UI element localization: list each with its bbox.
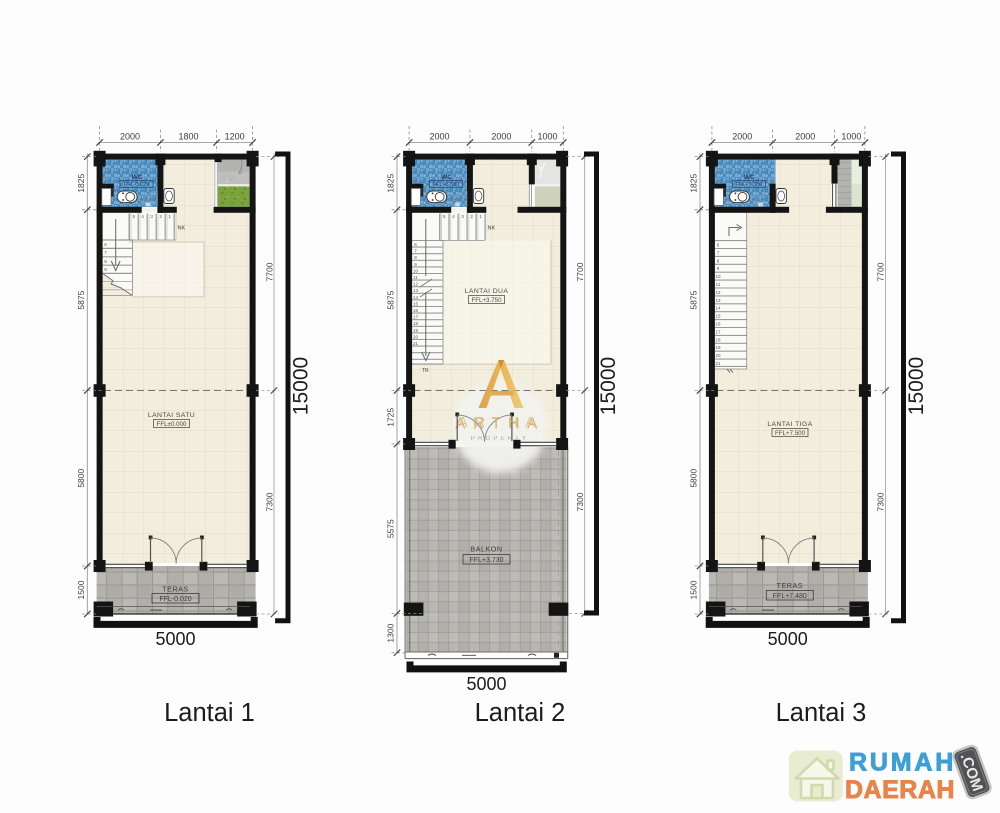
- svg-text:17: 17: [413, 315, 419, 320]
- svg-text:1725: 1725: [386, 408, 396, 427]
- svg-text:13: 13: [413, 288, 419, 293]
- svg-text:13: 13: [715, 298, 721, 303]
- svg-text:FFL-0.020: FFL-0.020: [124, 182, 149, 188]
- svg-text:14: 14: [413, 295, 419, 300]
- svg-text:2000: 2000: [732, 132, 752, 142]
- svg-text:NK: NK: [488, 226, 496, 232]
- svg-text:1825: 1825: [386, 173, 396, 192]
- svg-text:TERAS: TERAS: [162, 585, 188, 594]
- svg-text:18: 18: [413, 321, 419, 326]
- svg-text:FFL+3.680: FFL+3.680: [433, 182, 460, 188]
- svg-text:12: 12: [413, 282, 419, 287]
- svg-text:WC: WC: [744, 174, 755, 181]
- svg-text:7700: 7700: [265, 262, 275, 281]
- svg-text:1000: 1000: [841, 132, 861, 142]
- svg-text:18: 18: [715, 337, 721, 342]
- svg-text:FFL±0.000: FFL±0.000: [157, 421, 187, 428]
- svg-text:5575: 5575: [386, 519, 396, 538]
- svg-text:WC: WC: [132, 174, 143, 181]
- svg-text:1825: 1825: [76, 173, 86, 192]
- svg-text:LANTAI SATU: LANTAI SATU: [148, 412, 195, 419]
- svg-text:TERAS: TERAS: [777, 581, 803, 590]
- svg-text:19: 19: [715, 345, 721, 350]
- svg-text:7300: 7300: [575, 492, 585, 511]
- svg-text:20: 20: [413, 334, 419, 339]
- svg-text:DAERAH: DAERAH: [845, 776, 955, 804]
- svg-text:5000: 5000: [768, 629, 808, 649]
- svg-text:5000: 5000: [466, 674, 506, 694]
- svg-text:2000: 2000: [120, 132, 140, 142]
- svg-text:FFL+3.750: FFL+3.750: [471, 297, 502, 304]
- svg-text:16: 16: [413, 308, 419, 313]
- svg-text:1000: 1000: [537, 132, 557, 142]
- svg-text:FFL+7.380: FFL+7.380: [735, 182, 762, 188]
- svg-text:FFL+7.480: FFL+7.480: [773, 593, 807, 600]
- svg-text:5800: 5800: [76, 468, 86, 487]
- svg-text:5875: 5875: [386, 290, 396, 309]
- svg-text:12: 12: [715, 290, 721, 295]
- svg-text:BALKON: BALKON: [470, 545, 502, 554]
- svg-text:LANTAI TIGA: LANTAI TIGA: [767, 421, 812, 428]
- svg-text:Lantai 2: Lantai 2: [475, 699, 566, 727]
- svg-text:15000: 15000: [597, 357, 620, 415]
- svg-text:5000: 5000: [155, 629, 195, 649]
- svg-text:1800: 1800: [178, 132, 198, 142]
- svg-text:1500: 1500: [689, 580, 699, 599]
- svg-text:7300: 7300: [265, 492, 275, 511]
- svg-text:15: 15: [715, 314, 721, 319]
- svg-text:1300: 1300: [386, 623, 396, 642]
- svg-text:RUMAH: RUMAH: [849, 749, 956, 777]
- svg-text:ARTHA: ARTHA: [458, 415, 542, 431]
- svg-text:Lantai 1: Lantai 1: [164, 699, 255, 727]
- svg-text:FFL+7.500: FFL+7.500: [775, 430, 806, 437]
- svg-text:17: 17: [715, 329, 721, 334]
- svg-text:1825: 1825: [689, 173, 699, 192]
- svg-text:2000: 2000: [795, 132, 815, 142]
- svg-text:5875: 5875: [689, 290, 699, 309]
- svg-text:15000: 15000: [290, 357, 313, 415]
- svg-text:2000: 2000: [429, 132, 449, 142]
- svg-text:1500: 1500: [76, 580, 86, 599]
- svg-text:WC: WC: [441, 174, 452, 181]
- svg-text:NK: NK: [178, 226, 186, 232]
- svg-text:2000: 2000: [491, 132, 511, 142]
- svg-text:10: 10: [413, 268, 419, 273]
- svg-text:10: 10: [715, 274, 721, 279]
- svg-text:7300: 7300: [876, 492, 886, 511]
- svg-text:7700: 7700: [876, 262, 886, 281]
- svg-text:21: 21: [413, 341, 419, 346]
- svg-text:16: 16: [715, 322, 721, 327]
- svg-text:TR: TR: [422, 368, 429, 374]
- svg-text:Lantai 3: Lantai 3: [776, 699, 867, 727]
- svg-text:15: 15: [413, 301, 419, 306]
- svg-text:5800: 5800: [689, 468, 699, 487]
- svg-text:11: 11: [716, 282, 721, 287]
- svg-text:7700: 7700: [575, 262, 585, 281]
- svg-text:LANTAI DUA: LANTAI DUA: [465, 288, 509, 295]
- svg-text:PROPERTY: PROPERTY: [471, 436, 530, 442]
- svg-text:5875: 5875: [76, 290, 86, 309]
- svg-text:15000: 15000: [905, 357, 928, 415]
- svg-text:20: 20: [715, 353, 721, 358]
- svg-text:11: 11: [413, 275, 418, 280]
- svg-text:14: 14: [715, 306, 721, 311]
- svg-text:19: 19: [413, 328, 419, 333]
- svg-text:21: 21: [715, 361, 721, 366]
- svg-text:1200: 1200: [225, 132, 245, 142]
- svg-text:FFL-0.020: FFL-0.020: [159, 596, 191, 603]
- svg-text:FFL+3.730: FFL+3.730: [469, 557, 503, 564]
